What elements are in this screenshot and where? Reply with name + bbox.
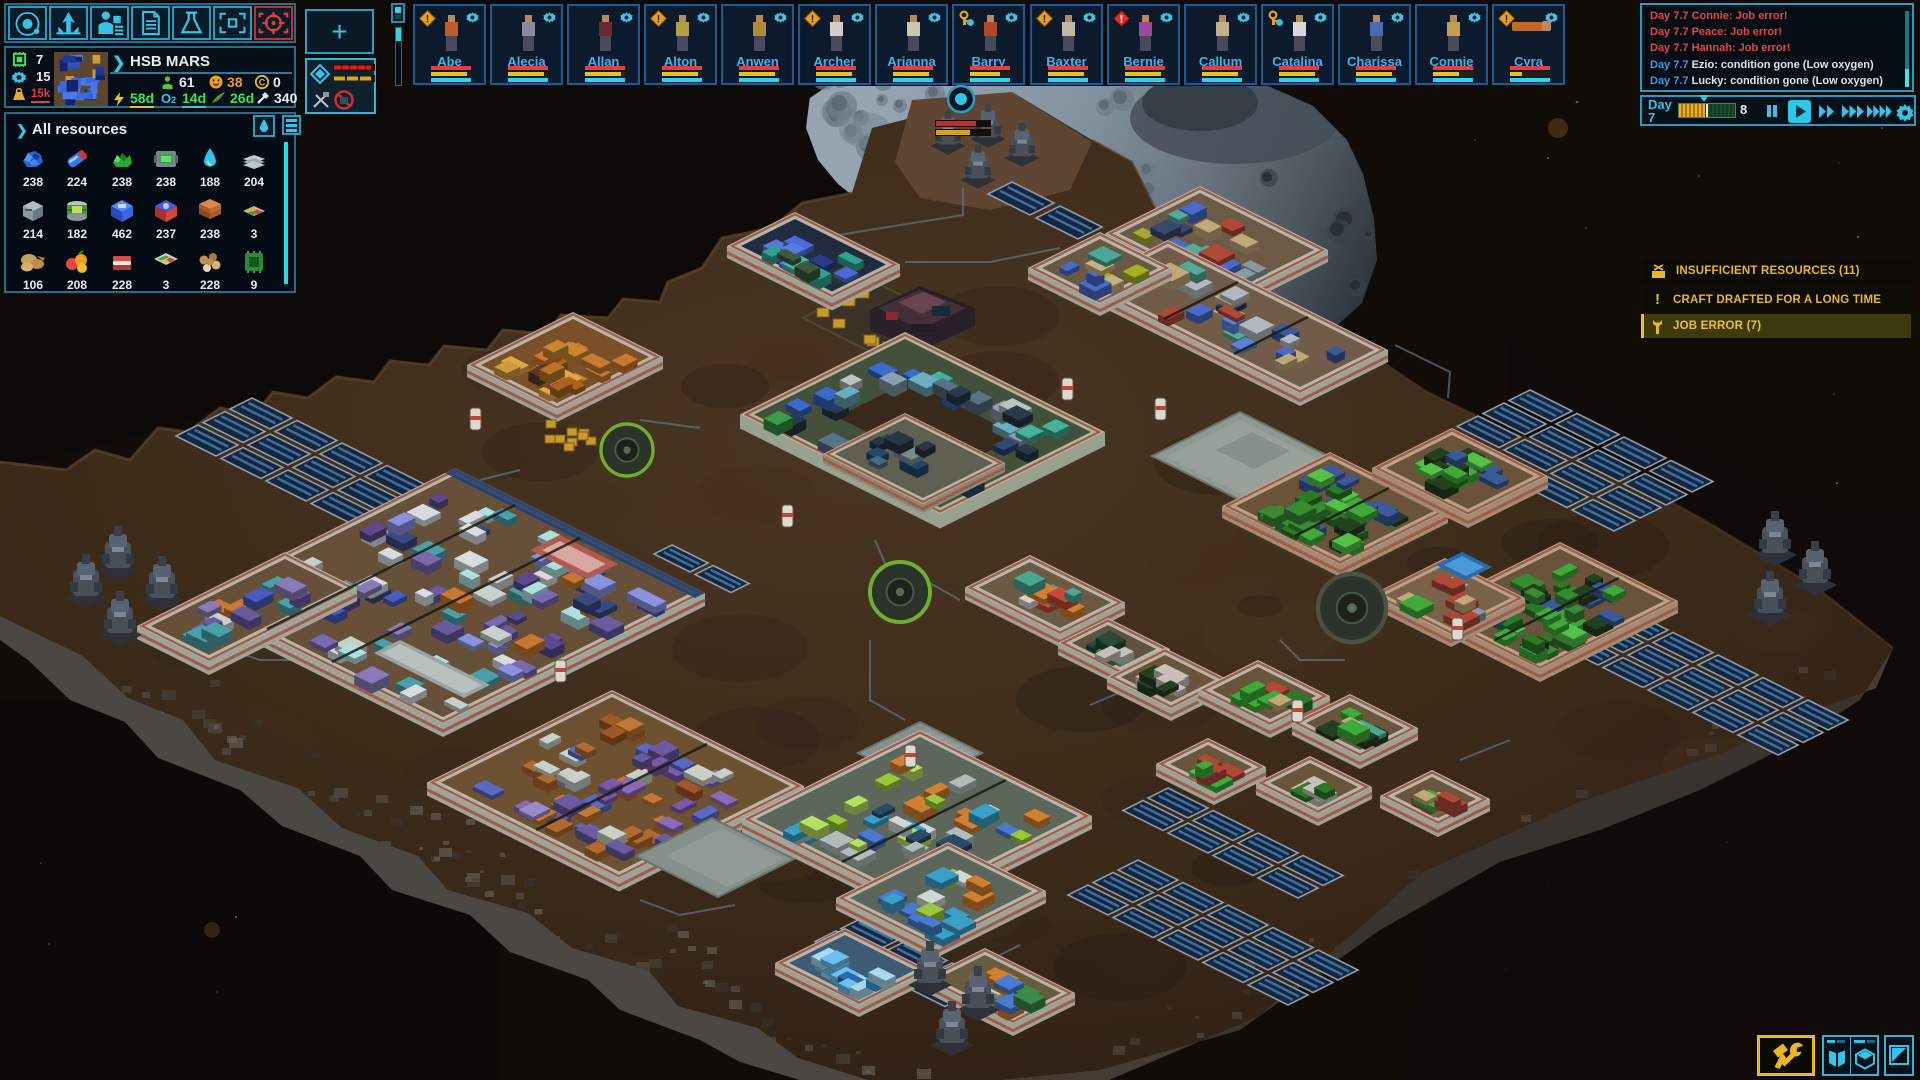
svg-text:C: C	[259, 77, 266, 87]
svg-text:!: !	[1120, 14, 1124, 26]
svg-text:!: !	[1505, 14, 1509, 26]
svg-text:!: !	[657, 14, 661, 26]
svg-text:!: !	[426, 14, 430, 26]
svg-text:!: !	[811, 14, 815, 26]
svg-text:!: !	[1043, 14, 1047, 26]
